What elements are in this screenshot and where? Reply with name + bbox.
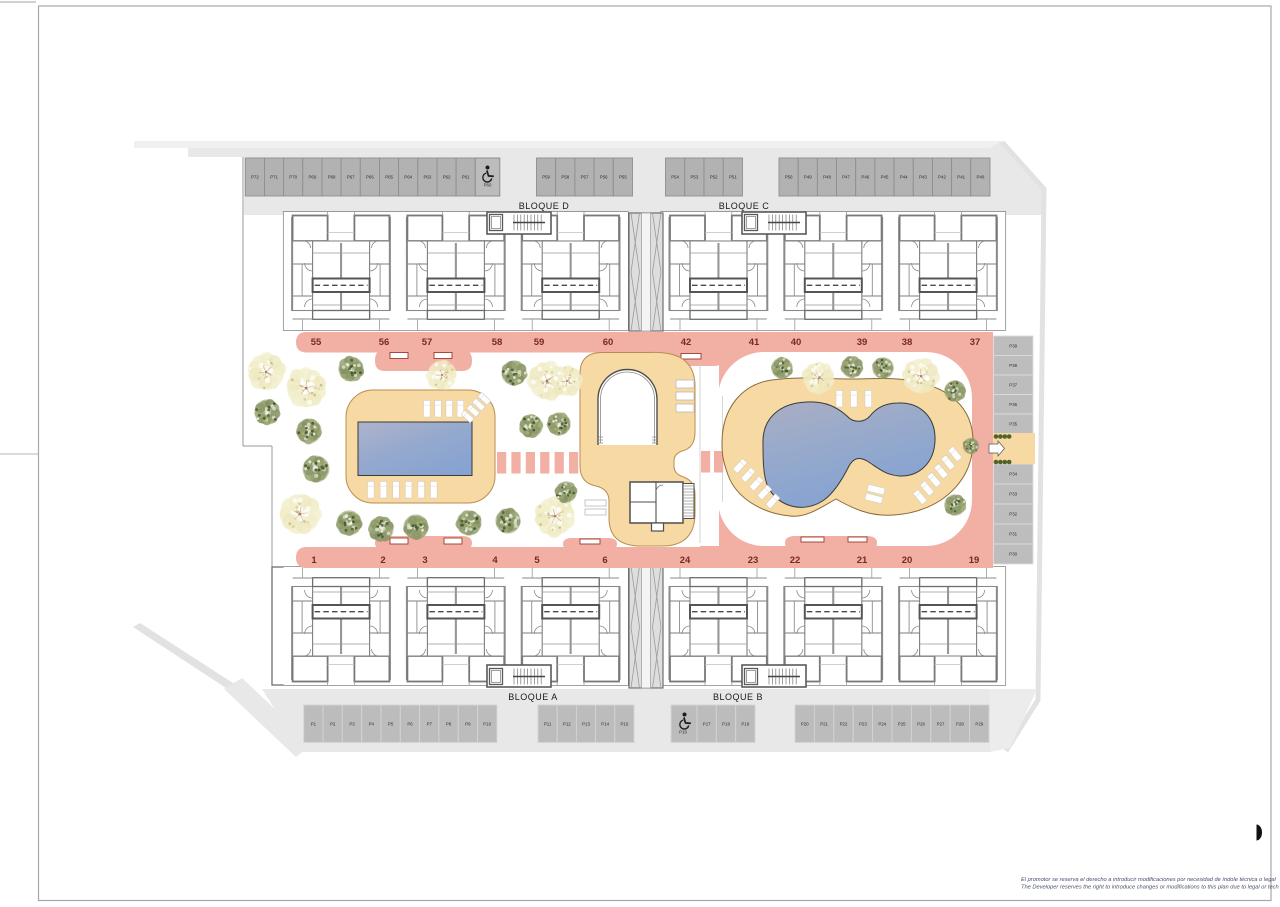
svg-text:P42: P42 [938,175,946,180]
svg-text:P26: P26 [917,721,925,726]
svg-text:19: 19 [969,555,980,566]
svg-text:BLOQUE B: BLOQUE B [713,692,763,702]
svg-text:P22: P22 [840,721,848,726]
svg-text:38: 38 [902,337,913,348]
svg-text:P39: P39 [1009,343,1017,348]
svg-text:P1: P1 [311,721,317,726]
svg-text:P64: P64 [404,175,412,180]
svg-text:P19: P19 [741,721,749,726]
svg-text:57: 57 [422,337,433,348]
svg-text:P37: P37 [1009,382,1017,387]
svg-text:P66: P66 [366,175,374,180]
svg-text:58: 58 [492,337,503,348]
svg-text:P36: P36 [1009,402,1017,407]
svg-text:P4: P4 [369,721,375,726]
svg-text:P50: P50 [785,175,793,180]
svg-text:P20: P20 [801,721,809,726]
svg-text:P27: P27 [937,721,945,726]
svg-text:P56: P56 [600,175,608,180]
svg-text:P55: P55 [619,175,627,180]
svg-text:P70: P70 [289,175,297,180]
svg-text:P48: P48 [823,175,831,180]
svg-text:P23: P23 [859,721,867,726]
svg-text:40: 40 [791,337,802,348]
svg-text:22: 22 [790,555,801,566]
svg-text:P62: P62 [443,175,451,180]
svg-text:24: 24 [680,555,691,566]
svg-text:P34: P34 [1009,472,1017,477]
svg-text:P33: P33 [1009,492,1017,497]
svg-text:P5: P5 [388,721,394,726]
svg-text:P49: P49 [804,175,812,180]
svg-text:P45: P45 [881,175,889,180]
svg-text:P68: P68 [328,175,336,180]
svg-text:55: 55 [311,337,322,348]
svg-text:BLOQUE C: BLOQUE C [719,201,770,211]
svg-text:P71: P71 [270,175,278,180]
svg-text:P28: P28 [956,721,964,726]
svg-text:1: 1 [311,555,317,566]
svg-text:P31: P31 [1009,532,1017,537]
svg-text:BLOQUE A: BLOQUE A [508,692,558,702]
svg-text:P9: P9 [465,721,471,726]
svg-text:20: 20 [902,555,913,566]
svg-text:P57: P57 [581,175,589,180]
svg-text:P53: P53 [690,175,698,180]
svg-text:P16: P16 [679,730,687,735]
svg-text:P44: P44 [900,175,908,180]
svg-text:P46: P46 [861,175,869,180]
svg-text:P52: P52 [710,175,718,180]
svg-text:3: 3 [422,555,427,566]
svg-text:23: 23 [748,555,759,566]
svg-text:P67: P67 [347,175,355,180]
svg-text:BLOQUE D: BLOQUE D [519,201,570,211]
svg-text:P61: P61 [462,175,470,180]
svg-text:P15: P15 [620,721,628,726]
svg-text:P25: P25 [898,721,906,726]
svg-text:P35: P35 [1009,421,1017,426]
svg-text:21: 21 [857,555,868,566]
svg-text:60: 60 [603,337,614,348]
svg-text:P3: P3 [349,721,355,726]
svg-text:P54: P54 [671,175,679,180]
svg-text:P38: P38 [1009,363,1017,368]
svg-text:P2: P2 [330,721,336,726]
svg-text:P30: P30 [1009,552,1017,557]
svg-text:P63: P63 [423,175,431,180]
svg-text:P17: P17 [703,721,711,726]
svg-text:P59: P59 [542,175,550,180]
svg-text:P47: P47 [842,175,850,180]
svg-text:39: 39 [857,337,868,348]
svg-text:5: 5 [534,555,540,566]
svg-text:42: 42 [681,337,692,348]
svg-text:El promotor se reserva el dere: El promotor se reserva el derecho a intr… [1021,877,1277,883]
svg-text:P18: P18 [722,721,730,726]
svg-text:59: 59 [534,337,545,348]
svg-text:P12: P12 [563,721,571,726]
svg-text:P21: P21 [820,721,828,726]
svg-text:The Developer reserves the rig: The Developer reserves the right to intr… [1021,885,1279,891]
svg-text:P41: P41 [957,175,965,180]
svg-text:P24: P24 [878,721,886,726]
svg-text:P69: P69 [308,175,316,180]
svg-text:P32: P32 [1009,512,1017,517]
svg-text:56: 56 [379,337,390,348]
svg-text:P11: P11 [544,721,552,726]
svg-text:4: 4 [492,555,498,566]
svg-text:37: 37 [970,337,981,348]
svg-text:P40: P40 [976,175,984,180]
svg-text:2: 2 [380,555,385,566]
svg-text:P8: P8 [446,721,452,726]
svg-text:P29: P29 [975,721,983,726]
svg-text:P65: P65 [385,175,393,180]
svg-text:P6: P6 [407,721,413,726]
svg-text:P60: P60 [484,183,492,188]
svg-text:P58: P58 [561,175,569,180]
svg-text:P13: P13 [582,721,590,726]
svg-text:41: 41 [749,337,760,348]
svg-text:P72: P72 [251,175,259,180]
svg-text:P10: P10 [483,721,491,726]
svg-text:P14: P14 [601,721,609,726]
svg-text:6: 6 [602,555,607,566]
svg-text:P43: P43 [919,175,927,180]
svg-text:P7: P7 [427,721,433,726]
svg-text:P51: P51 [729,175,737,180]
